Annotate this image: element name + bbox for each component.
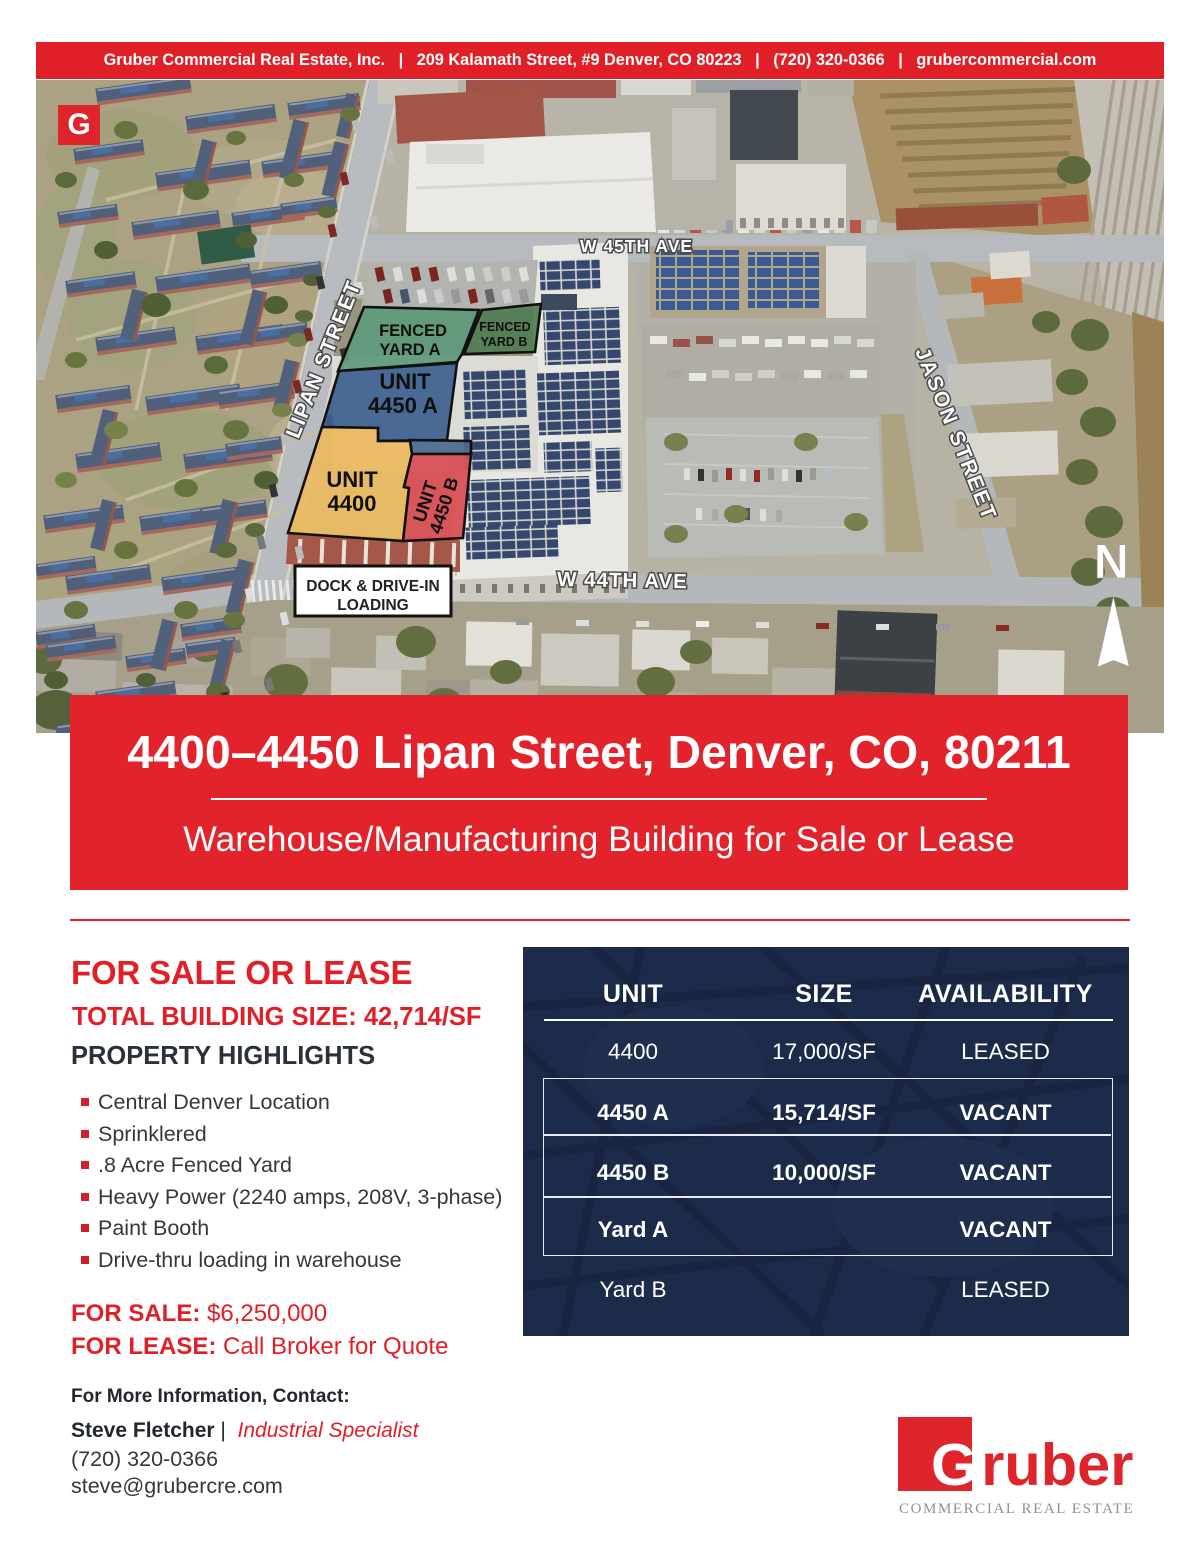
svg-text:FENCEDYARD A: FENCEDYARD A [379,322,447,359]
svg-text:UNIT4450 A: UNIT4450 A [368,369,438,418]
svg-text:W 45TH AVE: W 45TH AVE [580,236,693,256]
svg-text:FENCEDYARD B: FENCEDYARD B [479,320,530,349]
svg-text:LOADING: LOADING [337,597,408,614]
svg-text:DOCK & DRIVE-IN: DOCK & DRIVE-IN [306,578,439,595]
svg-text:N: N [1094,536,1129,589]
svg-text:W 44TH AVE: W 44TH AVE [557,568,688,593]
svg-text:UNIT4400: UNIT4400 [326,467,378,516]
